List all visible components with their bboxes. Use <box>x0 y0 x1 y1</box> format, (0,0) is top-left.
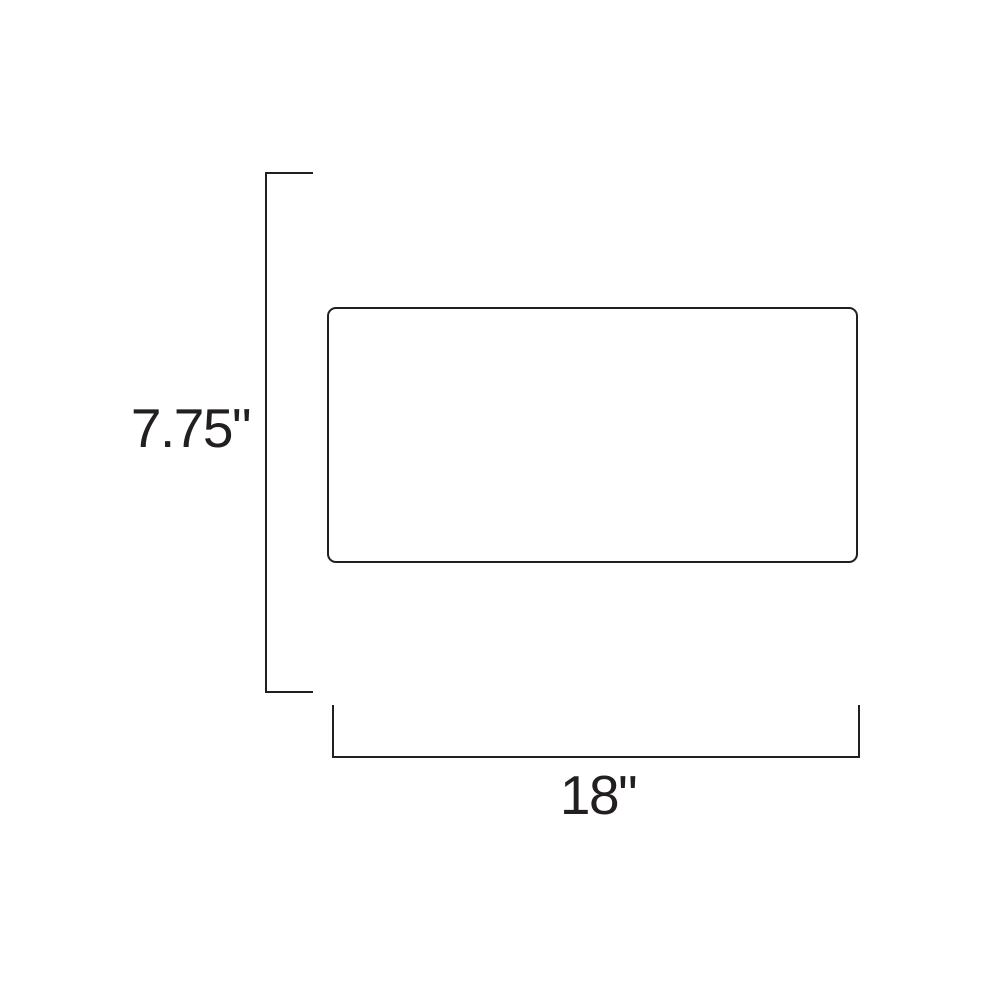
height-dimension-label: 7.75" <box>55 399 250 457</box>
height-extent-bracket <box>265 172 313 693</box>
fixture-outline <box>327 307 858 563</box>
dimension-diagram: 7.75" 18" <box>0 0 1000 1000</box>
width-dimension-label: 18" <box>498 766 698 824</box>
width-extent-bracket <box>332 705 860 758</box>
